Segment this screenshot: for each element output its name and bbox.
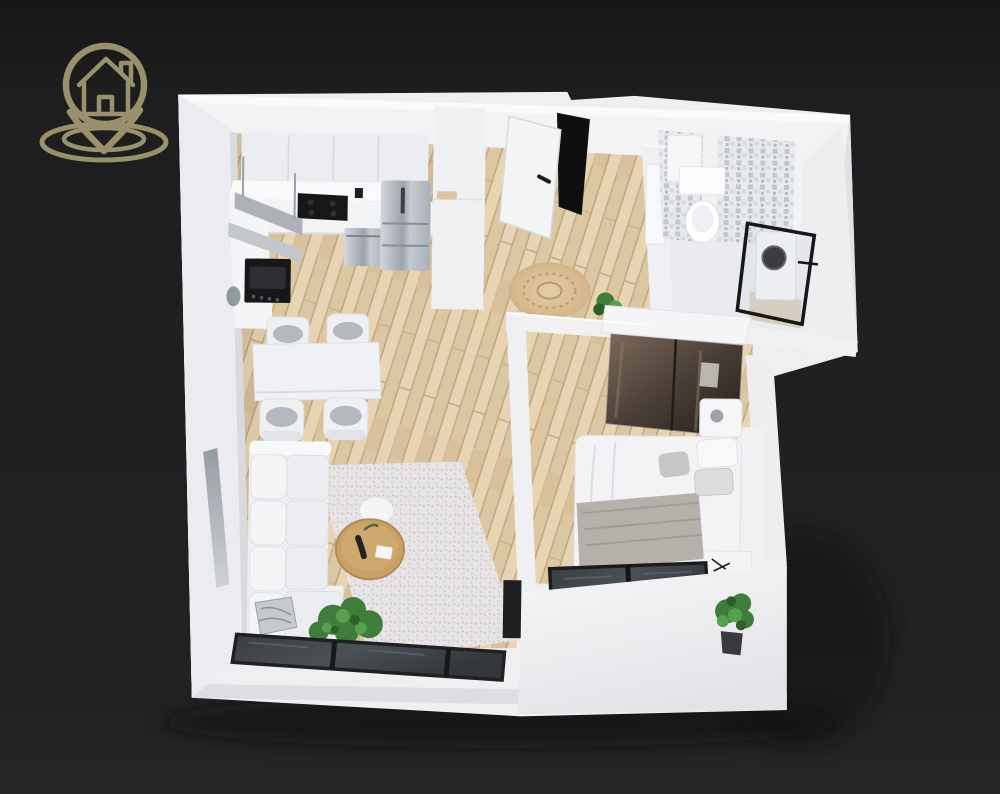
coffee-table [335, 519, 404, 580]
oven [244, 258, 291, 303]
screenshot-root [0, 0, 1000, 794]
glass-reflection-frame [699, 362, 719, 387]
apartment [170, 86, 862, 720]
toilet [685, 201, 720, 243]
floor-plan-render [0, 0, 1000, 794]
dining-chair [323, 398, 368, 441]
cooktop [297, 193, 347, 221]
fridge [380, 180, 431, 271]
toilet-cistern [679, 166, 725, 195]
table-decor-book [375, 545, 393, 559]
dining-chair [259, 399, 304, 442]
entrance-door [499, 116, 561, 239]
upper-cabinets [241, 132, 429, 183]
tall-cabinet [431, 107, 486, 310]
window-corner-post [503, 580, 522, 638]
nightstand [700, 399, 743, 438]
